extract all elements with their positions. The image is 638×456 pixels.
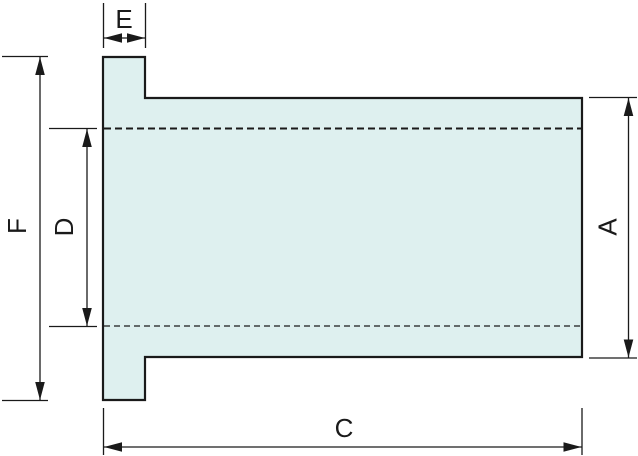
arrow-left-icon [104, 442, 122, 452]
arrow-up-icon [82, 129, 92, 147]
dim-label-F: F [2, 218, 32, 234]
dim-label-E: E [115, 4, 132, 34]
arrow-down-icon [624, 340, 634, 358]
part-outline [103, 57, 582, 400]
arrow-up-icon [35, 57, 45, 75]
dim-label-A: A [593, 218, 623, 236]
arrow-left-icon [104, 33, 122, 43]
part-cross-section [103, 57, 582, 400]
dimension-D: D [49, 129, 97, 327]
dim-label-C: C [335, 413, 354, 443]
dimension-A: A [589, 98, 637, 359]
arrow-right-icon [564, 442, 582, 452]
arrow-up-icon [624, 98, 634, 116]
drawing-page: E F D [0, 0, 638, 456]
dimension-F: F [2, 57, 48, 401]
dim-label-D: D [49, 218, 79, 237]
arrow-down-icon [35, 382, 45, 400]
technical-drawing-canvas: E F D [0, 0, 638, 456]
arrow-right-icon [127, 33, 145, 43]
arrow-down-icon [82, 308, 92, 326]
dimension-E: E [104, 3, 146, 48]
dimension-C: C [104, 408, 583, 455]
